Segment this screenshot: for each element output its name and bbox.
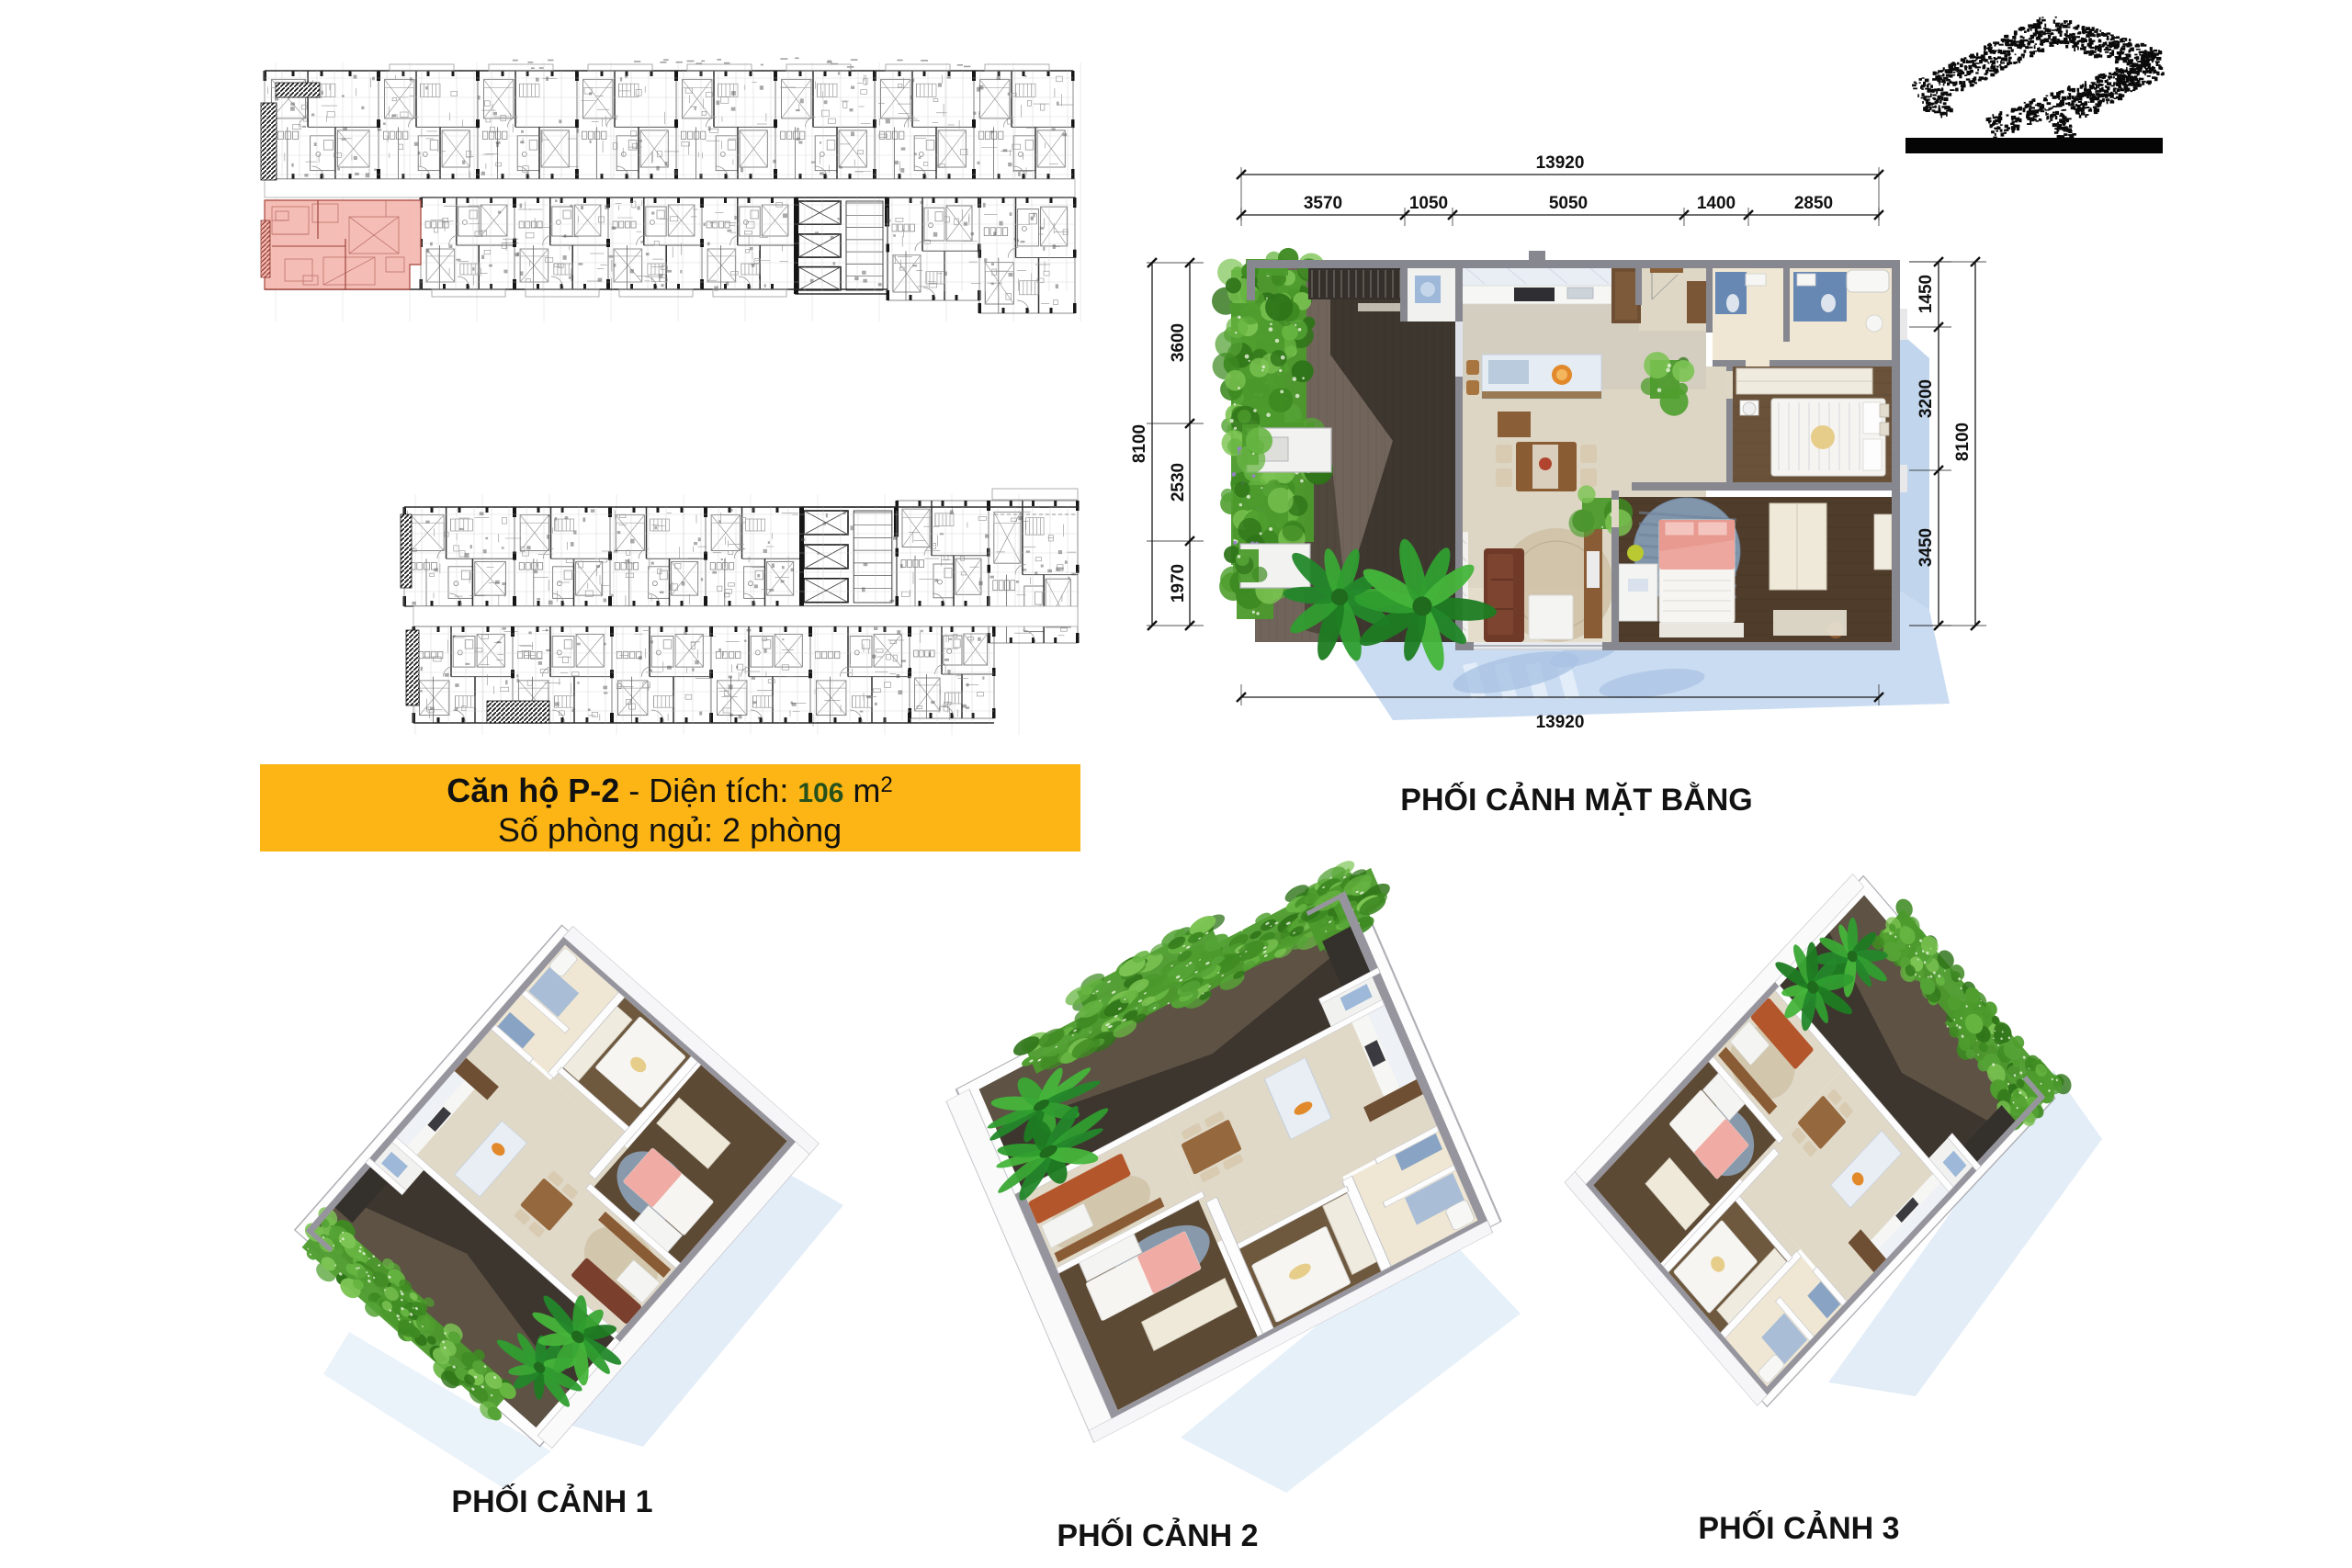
svg-text:2850: 2850 [1794, 194, 1833, 213]
svg-text:8100: 8100 [1130, 424, 1149, 463]
svg-text:3450: 3450 [1917, 528, 1936, 567]
svg-text:8100: 8100 [1953, 423, 1973, 461]
svg-text:5050: 5050 [1549, 194, 1588, 213]
svg-text:13920: 13920 [1536, 713, 1585, 732]
svg-text:Số phòng ngủ: 2 phòng: Số phòng ngủ: 2 phòng [498, 811, 842, 849]
svg-text:3200: 3200 [1917, 379, 1936, 418]
svg-text:PHỐI CẢNH MẶT BẰNG: PHỐI CẢNH MẶT BẰNG [1400, 782, 1752, 818]
svg-text:Căn hộ P-2 - Diện tích: 106 m2: Căn hộ P-2 - Diện tích: 106 m2 [447, 772, 893, 809]
svg-text:PHỐI CẢNH 2: PHỐI CẢNH 2 [1057, 1517, 1258, 1553]
svg-text:PHỐI CẢNH 3: PHỐI CẢNH 3 [1698, 1510, 1899, 1546]
svg-text:1050: 1050 [1409, 194, 1448, 213]
svg-text:2530: 2530 [1169, 463, 1188, 502]
svg-text:1400: 1400 [1697, 194, 1736, 213]
svg-text:1450: 1450 [1917, 275, 1936, 313]
svg-text:PHỐI CẢNH 1: PHỐI CẢNH 1 [451, 1483, 652, 1519]
svg-text:3570: 3570 [1304, 194, 1342, 213]
svg-text:3600: 3600 [1169, 323, 1188, 362]
svg-text:1970: 1970 [1169, 564, 1188, 603]
svg-text:13920: 13920 [1536, 153, 1585, 173]
